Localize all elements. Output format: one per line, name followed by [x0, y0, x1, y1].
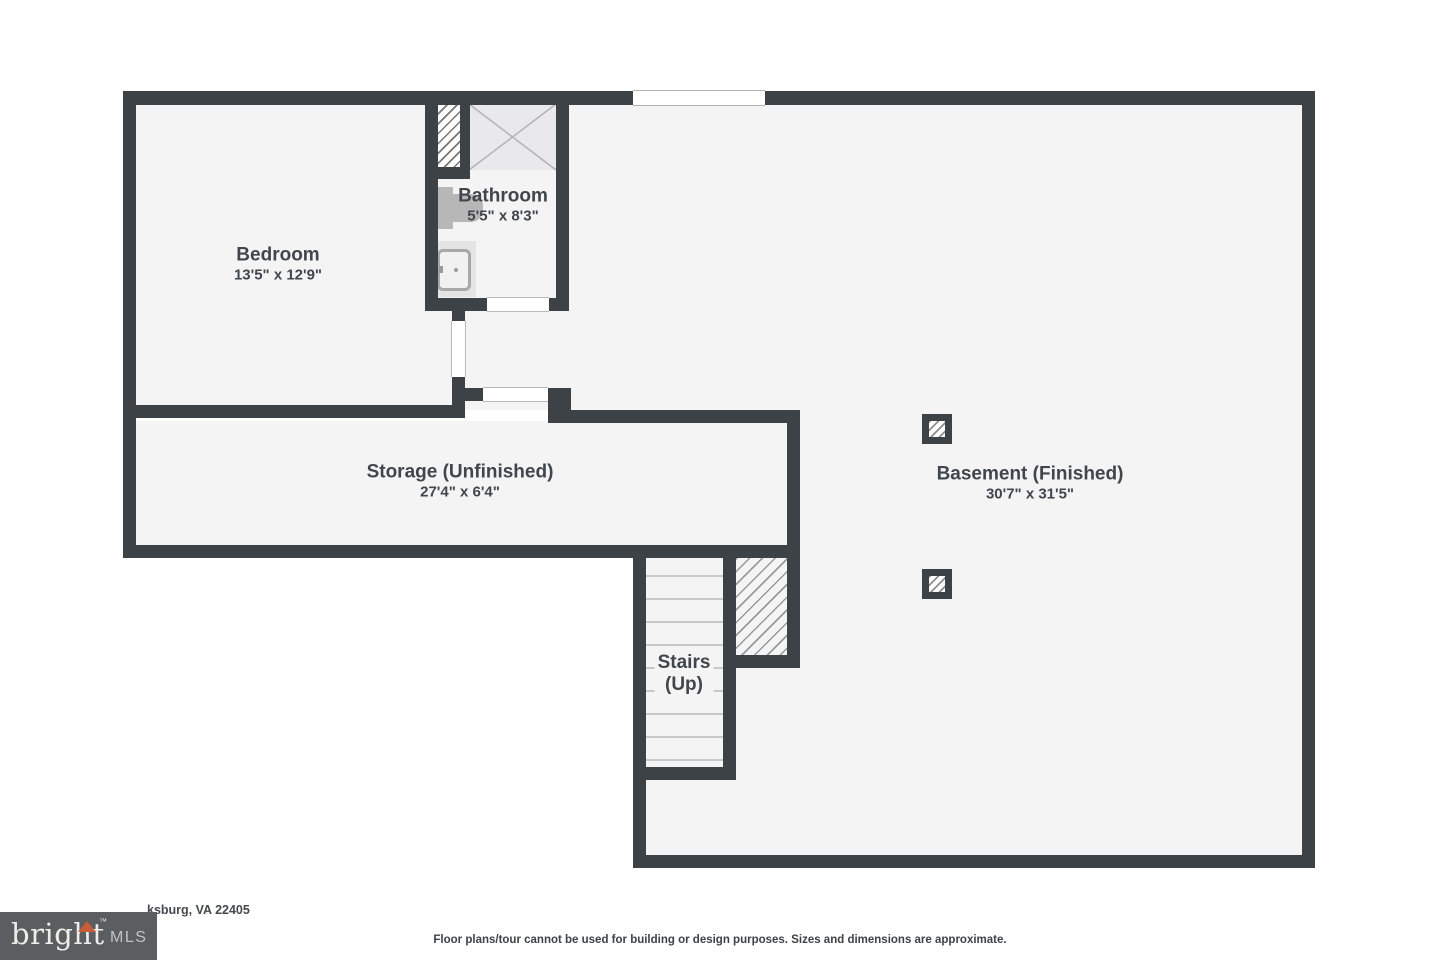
window-top [633, 90, 765, 106]
wall-bathroom-bottom-right [549, 298, 569, 311]
bright-mls-flame-icon [78, 921, 96, 932]
stairs-label: Stairs (Up) [655, 651, 714, 697]
basement-dimensions: 30'7" x 31'5" [937, 486, 1124, 505]
drain-mark [454, 268, 458, 272]
trademark-symbol: ™ [99, 917, 107, 926]
wall-bathroom-right [556, 91, 569, 311]
bathroom-name: Bathroom [458, 186, 548, 208]
wall-storage-bottom [123, 545, 800, 558]
shower-crossed-lines [469, 104, 556, 170]
wall-left [123, 91, 136, 558]
wall-stairs-bottom [633, 767, 736, 780]
disclaimer-text: Floor plans/tour cannot be used for buil… [0, 934, 1440, 946]
wall-bathroom-bottom-left [425, 298, 487, 311]
support-post-2 [922, 569, 952, 599]
wall-stairs-right [723, 558, 736, 780]
toilet-tank [437, 187, 453, 229]
door-opening-bedroom [451, 321, 466, 377]
wall-bedroom-bottom [123, 405, 465, 418]
wall-basement-bottom [633, 855, 1315, 868]
faucet-mark [439, 266, 443, 273]
stairs-name: Stairs [658, 652, 711, 674]
stairs-direction: (Up) [658, 674, 711, 696]
bathroom-dimensions: 5'5" x 8'3" [458, 208, 548, 227]
sink [437, 249, 471, 291]
bright-mls-logo: bright ™ MLS [0, 912, 157, 960]
storage-name: Storage (Unfinished) [367, 462, 554, 484]
door-opening-storage [483, 387, 548, 402]
basement-name: Basement (Finished) [937, 464, 1124, 486]
bedroom-dimensions: 13'5" x 12'9" [234, 267, 322, 286]
wall-basement-left [633, 545, 646, 868]
storage-dimensions: 27'4" x 6'4" [367, 484, 554, 503]
under-stair-hatch [736, 558, 787, 655]
chimney-chase-hatch [437, 104, 460, 167]
wall-bedroom-bathroom [425, 91, 438, 311]
door-opening-bathroom [487, 297, 549, 312]
support-post-hatch [929, 421, 945, 437]
bright-mls-mls-text: MLS [110, 929, 147, 947]
wall-chase-bottom [437, 167, 470, 179]
bathroom-label: Bathroom 5'5" x 8'3" [458, 186, 548, 227]
wall-understair-bottom [723, 655, 800, 668]
wall-storage-right [787, 410, 800, 668]
basement-floor-upper [556, 104, 1302, 421]
support-post-1 [922, 414, 952, 444]
property-address: ksburg, VA 22405 [147, 903, 250, 917]
bedroom-name: Bedroom [234, 245, 322, 267]
basement-label: Basement (Finished) 30'7" x 31'5" [937, 464, 1124, 505]
wall-hall-stub-top [452, 311, 465, 321]
wall-top-right [765, 91, 1315, 105]
shower-stall [469, 104, 556, 170]
wall-storage-top [548, 410, 800, 423]
storage-label: Storage (Unfinished) 27'4" x 6'4" [367, 462, 554, 503]
wall-hall-south-left [464, 388, 483, 401]
wall-right [1302, 91, 1315, 868]
support-post-hatch [929, 576, 945, 592]
bedroom-label: Bedroom 13'5" x 12'9" [234, 245, 322, 286]
